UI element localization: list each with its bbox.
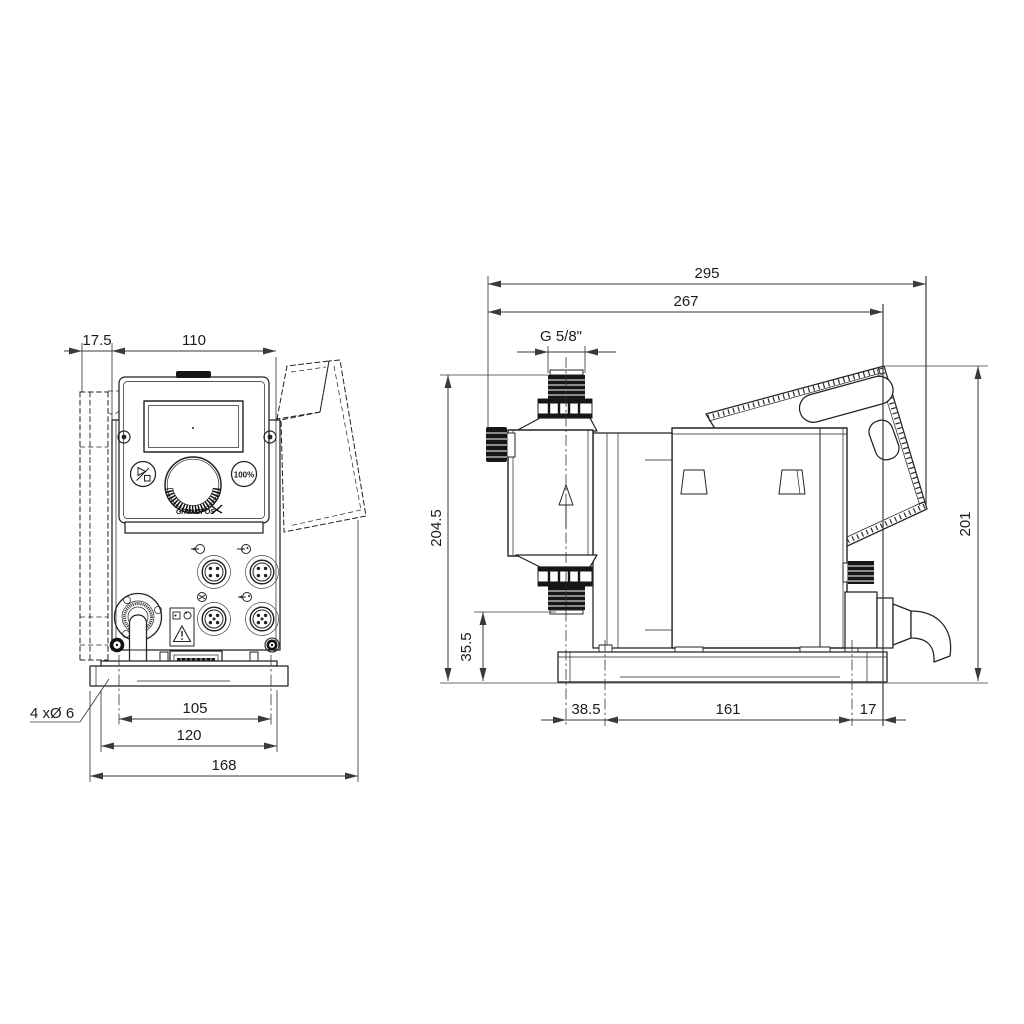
hundred-percent-label: 100% bbox=[234, 471, 254, 480]
dim-suction-height-value: 35.5 bbox=[458, 632, 475, 661]
m12-connector-bottom-left[interactable] bbox=[198, 603, 231, 636]
dim-wall-depth-value: 17.5 bbox=[82, 332, 111, 349]
cover-hinge-tab bbox=[176, 371, 211, 378]
pump-housing-side bbox=[672, 428, 847, 648]
dim-wall-depth: 17.5 bbox=[64, 332, 112, 351]
body-screw-left bbox=[112, 640, 123, 651]
display-dot bbox=[192, 427, 194, 429]
panel-skirt bbox=[125, 522, 263, 533]
base-plate-front bbox=[90, 666, 288, 686]
control-panel: 100% GRUNDFOS bbox=[118, 371, 276, 533]
dim-thread: G 5/8" bbox=[517, 328, 616, 373]
dim-suction-height: 35.5 bbox=[458, 612, 556, 681]
side-view: 295 267 G 5/8" 204.5 bbox=[428, 265, 988, 726]
rear-connections bbox=[843, 561, 951, 662]
discharge-valve bbox=[538, 370, 592, 418]
dim-overall-width-value: 168 bbox=[211, 757, 236, 774]
dim-height-discharge-value: 204.5 bbox=[428, 509, 445, 547]
open-cover-hidden-outline bbox=[277, 360, 366, 532]
start-stop-button[interactable] bbox=[131, 462, 156, 487]
mounting-base-side bbox=[558, 645, 887, 682]
front-view: 100% GRUNDFOS bbox=[30, 332, 366, 782]
hundred-percent-button[interactable]: 100% bbox=[232, 462, 257, 487]
body-screw-right bbox=[265, 638, 279, 652]
dim-overall-height-value: 201 bbox=[957, 511, 974, 536]
dimensional-drawing-page: 100% GRUNDFOS bbox=[0, 0, 1024, 1024]
dim-center-to-slot-value: 38.5 bbox=[571, 701, 600, 718]
mains-cable-side bbox=[911, 611, 951, 662]
dim-width: 110 bbox=[112, 332, 276, 351]
dim-plate-width-value: 120 bbox=[176, 727, 201, 744]
suction-valve bbox=[516, 555, 597, 614]
dim-slot-spacing-side-value: 161 bbox=[715, 701, 740, 718]
cable-gland bbox=[845, 592, 911, 648]
threaded-stud bbox=[843, 561, 874, 584]
dim-slot-to-gland-value: 17 bbox=[860, 701, 877, 718]
note-mounting-holes-value: 4 xØ 6 bbox=[30, 705, 74, 722]
m12-connector-bottom-right[interactable] bbox=[246, 603, 279, 636]
drive-flange-section bbox=[593, 433, 672, 648]
base-lip bbox=[101, 661, 277, 666]
pump-dimensional-drawing: 100% GRUNDFOS bbox=[0, 0, 1024, 1024]
dim-thread-value: G 5/8" bbox=[540, 328, 582, 345]
mounting-base-front bbox=[90, 650, 288, 686]
warning-label bbox=[170, 608, 194, 646]
lcd-display bbox=[144, 401, 243, 452]
dim-width-value: 110 bbox=[182, 332, 206, 349]
dim-depth-to-cable-gland-value: 267 bbox=[673, 293, 698, 310]
dim-slot-spacing-front-value: 105 bbox=[182, 700, 207, 717]
dosing-head bbox=[486, 370, 597, 614]
dim-overall-depth-value: 295 bbox=[694, 265, 719, 282]
brand-logo-text: GRUNDFOS bbox=[176, 509, 215, 516]
dim-slot-to-gland: 17 bbox=[852, 701, 906, 720]
